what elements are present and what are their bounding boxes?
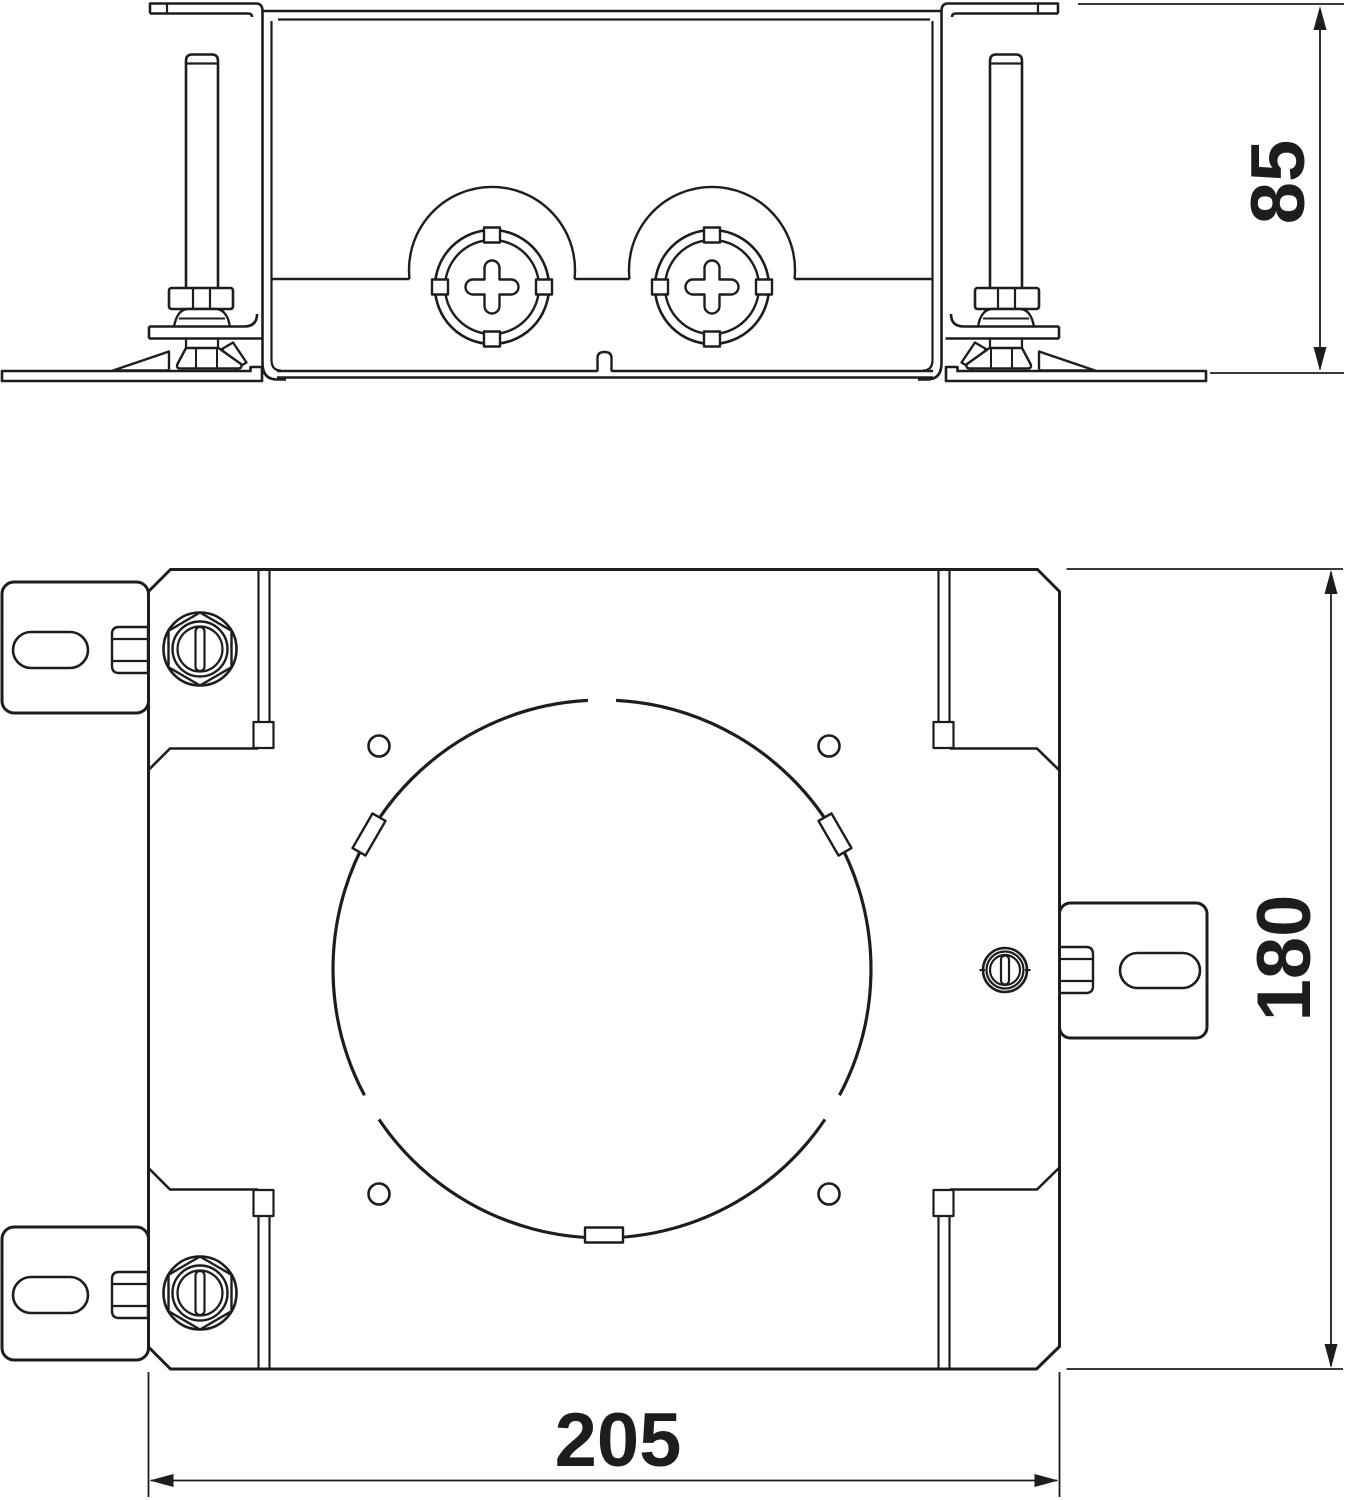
enclosure-body xyxy=(150,4,1058,380)
knockout-right-tab-bottom xyxy=(704,332,720,347)
bracket-top-left-slot xyxy=(13,632,88,668)
bracket-connector-right xyxy=(1060,947,1094,993)
opening-circle-arc-bottom xyxy=(379,1119,825,1238)
face-line xyxy=(272,187,932,279)
dimension-label-205: 205 xyxy=(555,1398,682,1483)
knockout-right xyxy=(652,228,772,347)
knockout-right-cross xyxy=(686,261,739,314)
knockout-left-outer-circle xyxy=(435,230,549,344)
drawing-canvas: 85 xyxy=(0,0,1347,1500)
rail-block-top-right xyxy=(934,722,954,748)
screw-head-slot xyxy=(196,1271,205,1315)
screw-head-slot xyxy=(196,627,205,671)
opening-tab-upper-left xyxy=(353,813,386,855)
bracket-plate-left-fill xyxy=(149,328,259,339)
flange-right xyxy=(942,4,1059,14)
wall-left-outer xyxy=(263,10,287,380)
pilot-hole-top-right xyxy=(819,736,840,757)
side-elevation-view: 85 xyxy=(2,4,1344,382)
inner-step-top-right xyxy=(950,749,1060,771)
plan-view: 180 205 xyxy=(2,569,1343,1497)
pilot-hole-top-left xyxy=(369,736,390,757)
knockout-right-inner-circle xyxy=(665,240,759,334)
knockout-right-tab-right xyxy=(756,280,772,295)
hex-nut-right xyxy=(975,288,1039,309)
dimension-plan-width: 205 xyxy=(149,1372,1060,1497)
dimension-plan-height: 180 xyxy=(1067,569,1344,1369)
knockout-left-tab-right xyxy=(536,280,552,295)
rail-block-bottom-right xyxy=(934,1190,954,1216)
bracket-bottom-left-slot xyxy=(13,1277,88,1313)
inner-step-bottom-right xyxy=(950,1168,1060,1190)
inner-rails-top-left xyxy=(259,570,270,723)
inner-step-top-left xyxy=(149,749,259,771)
fixing-screw-slot xyxy=(1001,956,1009,985)
mounting-bracket-top-left xyxy=(2,582,149,713)
arrowhead-left xyxy=(150,1474,174,1487)
leveling-screw-left xyxy=(149,55,263,370)
dimension-drawing: 85 xyxy=(0,0,1347,1500)
arrowhead-up xyxy=(1325,570,1338,594)
opening-tab-upper-right xyxy=(819,813,852,855)
arrowhead-right xyxy=(1035,1474,1059,1487)
stud-right xyxy=(990,55,1022,289)
knockout-left xyxy=(432,228,552,347)
wall-right-inner xyxy=(923,21,933,371)
knockout-right-outer-circle xyxy=(655,230,769,344)
flange-left-inner xyxy=(150,14,252,18)
flange-right-inner xyxy=(952,14,1058,18)
arrowhead-up xyxy=(1314,6,1327,30)
leveling-screw-head-bottom-left xyxy=(164,1257,237,1330)
bracket-right-slot xyxy=(1120,953,1200,988)
pilot-hole-bottom-left xyxy=(369,1184,390,1205)
stud-left xyxy=(186,55,218,289)
dimension-label-180: 180 xyxy=(1242,895,1327,1022)
arrowhead-down xyxy=(1314,347,1327,371)
mounting-bracket-right xyxy=(1060,903,1208,1038)
device-opening xyxy=(333,700,871,1242)
knockout-left-tab-left xyxy=(432,280,448,295)
inner-rails-top-right xyxy=(939,570,950,723)
fixing-screw-right xyxy=(980,948,1031,992)
inner-rails-bottom-left xyxy=(259,1216,270,1369)
leveling-screw-head-top-left xyxy=(164,613,237,686)
opening-circle-arc-left xyxy=(333,700,588,1095)
rail-block-top-left xyxy=(254,722,274,748)
bracket-plate-right-fill xyxy=(949,328,1059,339)
inner-step-bottom-left xyxy=(149,1168,259,1190)
knockout-left-cross xyxy=(466,261,519,314)
base-wedge-left xyxy=(113,352,169,371)
stud-right-lower xyxy=(990,339,1022,349)
cable-notch xyxy=(598,352,612,372)
knockout-right-tab-top xyxy=(704,228,720,243)
bracket-connector-top-left xyxy=(112,627,148,673)
rail-block-bottom-left xyxy=(254,1190,274,1216)
opening-circle-arc-right xyxy=(616,700,871,1095)
dimension-side-height: 85 xyxy=(1078,4,1344,373)
hex-nut-left xyxy=(169,288,233,309)
leveling-screw-right xyxy=(946,55,1060,370)
stud-left-lower xyxy=(186,339,218,349)
wall-left-inner xyxy=(272,21,282,371)
pilot-hole-bottom-right xyxy=(819,1184,840,1205)
knockout-left-tab-top xyxy=(484,228,500,243)
knockout-left-inner-circle xyxy=(445,240,539,334)
knockout-left-tab-bottom xyxy=(484,332,500,347)
knockout-right-tab-left xyxy=(652,280,668,295)
base-wedge-right xyxy=(1039,352,1095,371)
wall-right-outer xyxy=(918,10,942,380)
arrowhead-down xyxy=(1325,1344,1338,1368)
dimension-label-85: 85 xyxy=(1236,140,1321,225)
mounting-bracket-bottom-left xyxy=(2,1227,149,1360)
bracket-connector-bottom-left xyxy=(112,1272,148,1318)
inner-rails-bottom-right xyxy=(939,1216,950,1369)
plan-outline xyxy=(149,570,1060,1370)
opening-tab-bottom xyxy=(585,1228,623,1243)
